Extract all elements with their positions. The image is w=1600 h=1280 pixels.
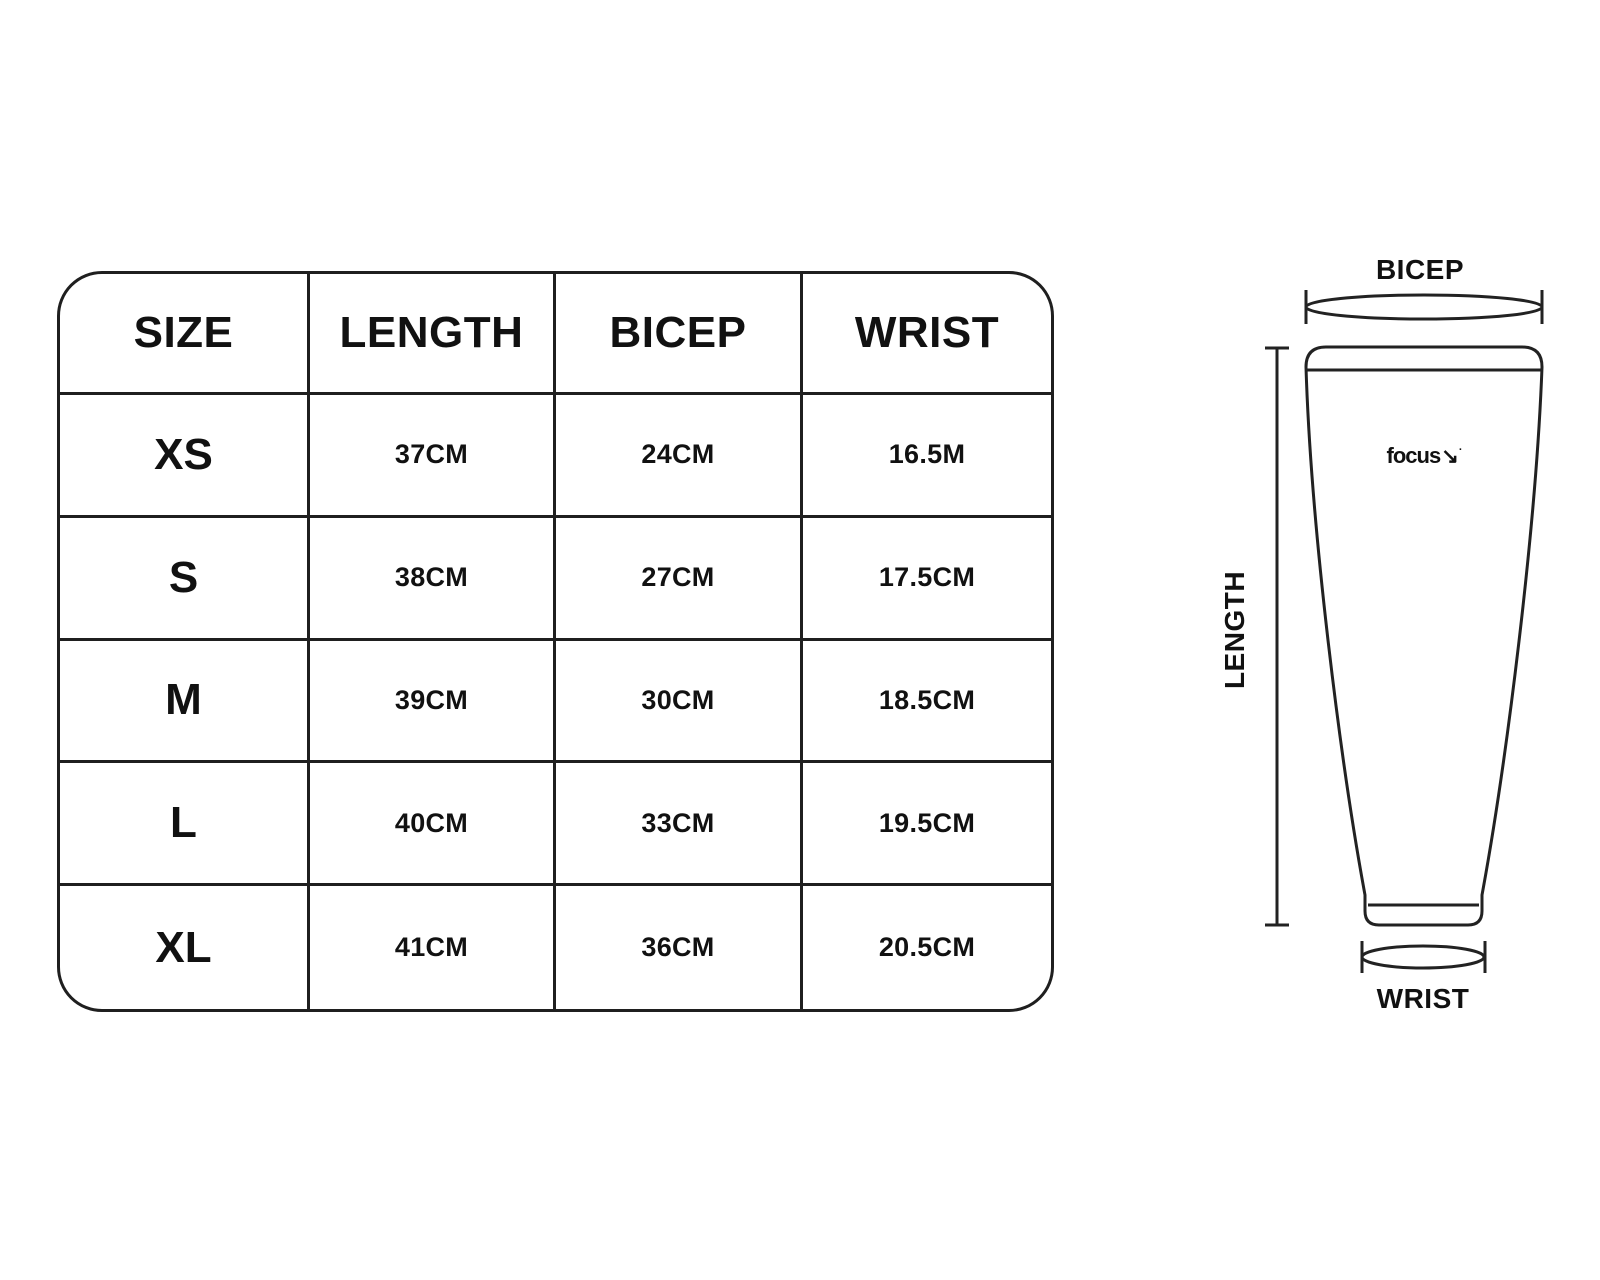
bicep-measure-ellipse [1306,295,1542,319]
row-s-wrist: 17.5CM [803,518,1051,641]
sleeve-outline [1306,347,1542,925]
row-xl-length: 41CM [310,886,556,1009]
row-xs-size: XS [60,395,310,518]
row-xl-bicep: 36CM [556,886,803,1009]
row-s-size: S [60,518,310,641]
wrist-measure-ellipse [1362,946,1484,968]
row-xs-length: 37CM [310,395,556,518]
header-length: LENGTH [310,274,556,395]
header-bicep: BICEP [556,274,803,395]
brand-arrow-icon: ↘ [1441,444,1458,469]
row-xl-wrist: 20.5CM [803,886,1051,1009]
header-size: SIZE [60,274,310,395]
row-s-length: 38CM [310,518,556,641]
brand-trademark-dot: · [1459,443,1462,457]
row-s-bicep: 27CM [556,518,803,641]
bicep-label: BICEP [1376,254,1464,286]
row-l-length: 40CM [310,763,556,886]
row-l-bicep: 33CM [556,763,803,886]
wrist-label: WRIST [1377,983,1470,1015]
header-wrist: WRIST [803,274,1051,395]
row-xl-size: XL [60,886,310,1009]
row-m-size: M [60,641,310,764]
row-xs-bicep: 24CM [556,395,803,518]
row-m-bicep: 30CM [556,641,803,764]
row-xs-wrist: 16.5M [803,395,1051,518]
row-m-length: 39CM [310,641,556,764]
size-table: SIZE LENGTH BICEP WRIST XS 37CM 24CM 16.… [57,271,1054,1012]
row-l-size: L [60,763,310,886]
row-l-wrist: 19.5CM [803,763,1051,886]
brand-logo: focus ↘ · [1387,443,1462,469]
row-m-wrist: 18.5CM [803,641,1051,764]
length-label: LENGTH [1219,571,1251,689]
brand-logo-text: focus [1387,443,1441,469]
size-chart-page: { "table": { "headers": ["SIZE", "LENGTH… [0,0,1600,1280]
